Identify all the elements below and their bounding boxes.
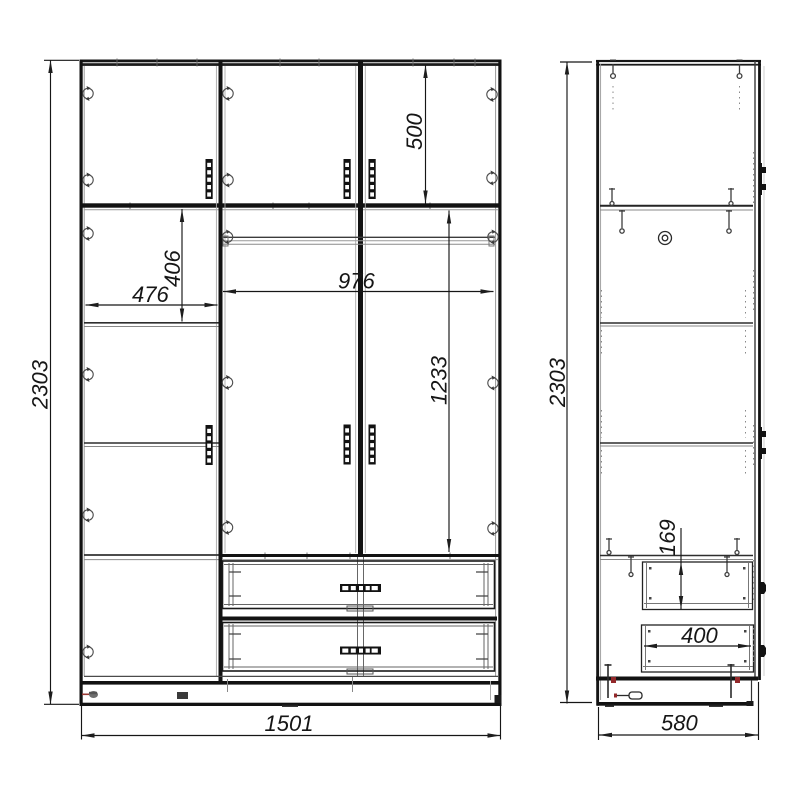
- svg-text:2303: 2303: [28, 359, 53, 410]
- svg-text:169: 169: [655, 519, 680, 556]
- svg-text:580: 580: [661, 711, 698, 736]
- svg-text:976: 976: [338, 269, 375, 294]
- svg-text:400: 400: [681, 623, 718, 648]
- svg-text:1233: 1233: [427, 355, 452, 405]
- svg-text:476: 476: [132, 282, 169, 307]
- svg-text:2303: 2303: [545, 357, 570, 408]
- svg-text:500: 500: [402, 113, 427, 150]
- svg-text:1501: 1501: [265, 711, 314, 736]
